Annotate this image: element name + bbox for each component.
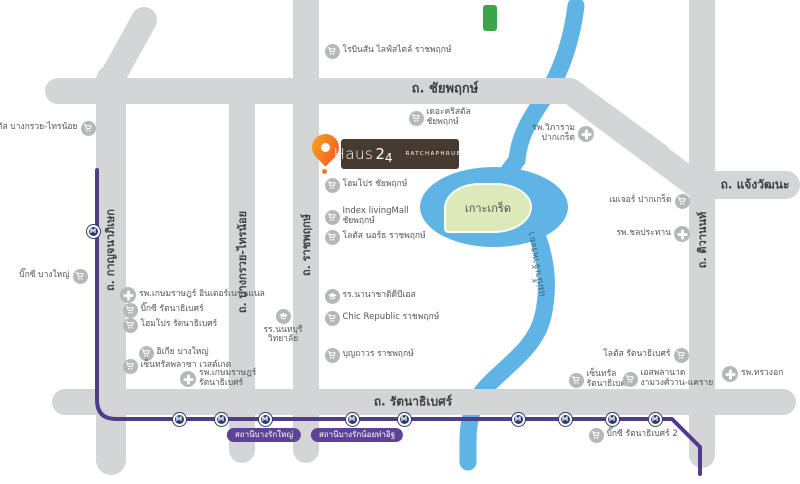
poi-label: บุญถาวร ราชพฤกษ์ <box>343 350 414 360</box>
cart-icon <box>73 269 88 284</box>
location-pin-dot <box>322 169 327 174</box>
road-label-chaengwattana: ถ. แจ้งวัฒนะ <box>721 176 790 195</box>
mrt-station-icon: M <box>397 412 412 427</box>
poi-label: โรบินสัน ไลฟ์สไตล์ ราชพฤกษ์ <box>343 46 452 56</box>
cart-icon <box>325 178 340 193</box>
cross-icon <box>674 226 690 242</box>
road-label-ratchaphruek: ถ. ราชพฤกษ์ <box>297 214 315 276</box>
cart-icon <box>325 210 340 225</box>
cart-icon <box>325 44 340 59</box>
road-label-tiwanon: ถ. ติวานนท์ <box>693 212 711 268</box>
poi-label: โฮมโปร ชัยพฤกษ์ <box>343 180 408 190</box>
cross-icon <box>180 371 196 387</box>
poi-label: เมเจอร์ ปากเกร็ด <box>609 196 671 206</box>
cart-icon <box>325 230 340 245</box>
cart-icon <box>325 348 340 363</box>
koh-kret-island: เกาะเกร็ด <box>444 183 532 233</box>
cart-icon <box>139 346 154 361</box>
poi-label: โลตัส นอร์ธ ราชพฤกษ์ <box>343 232 426 242</box>
road-label-kanchanaphisek: ถ. กาญจนาภิเษก <box>101 209 119 291</box>
brand-subtitle: RATCHAPHRUEK <box>406 151 467 157</box>
school-icon <box>325 289 340 304</box>
mrt-station-icon: M <box>558 412 573 427</box>
poi-label: รพ.วิภารามปากเกร็ด <box>532 124 575 144</box>
cart-icon <box>674 348 689 363</box>
poi-label: รพ.ทรวงอก <box>741 369 783 379</box>
poi-label: Chic Republic ราชพฤกษ์ <box>343 313 440 323</box>
cart-icon <box>409 111 424 126</box>
poi-label: เอสพลานาดงามวงศ์วาน-แคราย <box>641 369 714 389</box>
brand-number-big: 2 <box>375 145 385 163</box>
poi-label: รพ.ชลประทาน <box>616 229 671 239</box>
poi-label: รร.นนทบุรีวิทยาลัย <box>243 326 323 346</box>
cross-icon <box>722 366 738 382</box>
mrt-station-icon: M <box>214 412 229 427</box>
cross-icon <box>120 287 136 303</box>
poi-label: รพ.เกษมราษฎร์รัตนาธิเบศร์ <box>199 369 256 389</box>
poi-label: รร.นานาชาติดีบีเอส <box>343 291 416 301</box>
poi-label: โฮมโปร รัตนาธิเบศร์ <box>141 320 218 330</box>
road-topleft-diagonal <box>112 20 144 78</box>
island-label: เกาะเกร็ด <box>465 199 511 217</box>
cart-icon <box>623 372 638 387</box>
poi-label: โลตัส บางกรวย-ไทรน้อย <box>0 123 78 133</box>
cross-icon <box>578 126 594 142</box>
school-icon <box>276 309 291 324</box>
mrt-station-icon: M <box>345 412 360 427</box>
mrt-station-icon: M <box>648 412 663 427</box>
poi-label: เดอะคริสตัลชัยพฤกษ์ <box>427 108 471 128</box>
mrt-station-label: สถานีบางรักใหญ่ <box>227 428 301 442</box>
poi-label: อิเกีย บางใหญ่ <box>157 348 209 358</box>
brand-number-small: 4 <box>385 151 393 165</box>
mrt-station-icon: M <box>86 224 101 239</box>
cart-icon <box>123 318 138 333</box>
mrt-station-icon: M <box>605 412 620 427</box>
mrt-station-icon: M <box>511 412 526 427</box>
cart-icon <box>123 303 138 318</box>
mrt-station-icon: M <box>258 412 273 427</box>
mrt-station-label: สถานีบางรักน้อยท่าอิฐ <box>311 428 403 442</box>
poi-label: บิ๊กซี รัตนาธิเบศร์ 2 <box>607 430 678 440</box>
location-map: เกาะเกร็ด แม่น้ำเจ้าพระยา Haus 2 4 RATCH… <box>0 0 800 484</box>
cart-icon <box>325 311 340 326</box>
poi-label: รพ.เกษมราษฎร์ อินเตอร์เนชั่นแนล <box>139 290 265 300</box>
cart-icon <box>123 359 138 374</box>
cart-icon <box>81 121 96 136</box>
poi-label: บิ๊กซี บางใหญ่ <box>19 271 69 281</box>
green-tag-marker <box>483 5 497 31</box>
road-label-chaiyaphruek: ถ. ชัยพฤกษ์ <box>412 78 479 99</box>
mrt-station-icon: M <box>172 412 187 427</box>
road-label-rattanathibet: ถ. รัตนาธิเบศร์ <box>374 393 452 412</box>
poi-label: Index livingMallชัยพฤกษ์ <box>343 207 409 227</box>
cart-icon <box>589 428 604 443</box>
poi-label: บิ๊กซี รัตนาธิเบศร์ <box>141 305 204 315</box>
brand-logo: Haus 2 4 RATCHAPHRUEK <box>341 139 459 169</box>
poi-label: โลตัส รัตนาธิเบศร์ <box>603 350 670 360</box>
brand-name: Haus <box>334 145 374 163</box>
cart-icon <box>675 194 690 209</box>
cart-icon <box>569 373 584 388</box>
